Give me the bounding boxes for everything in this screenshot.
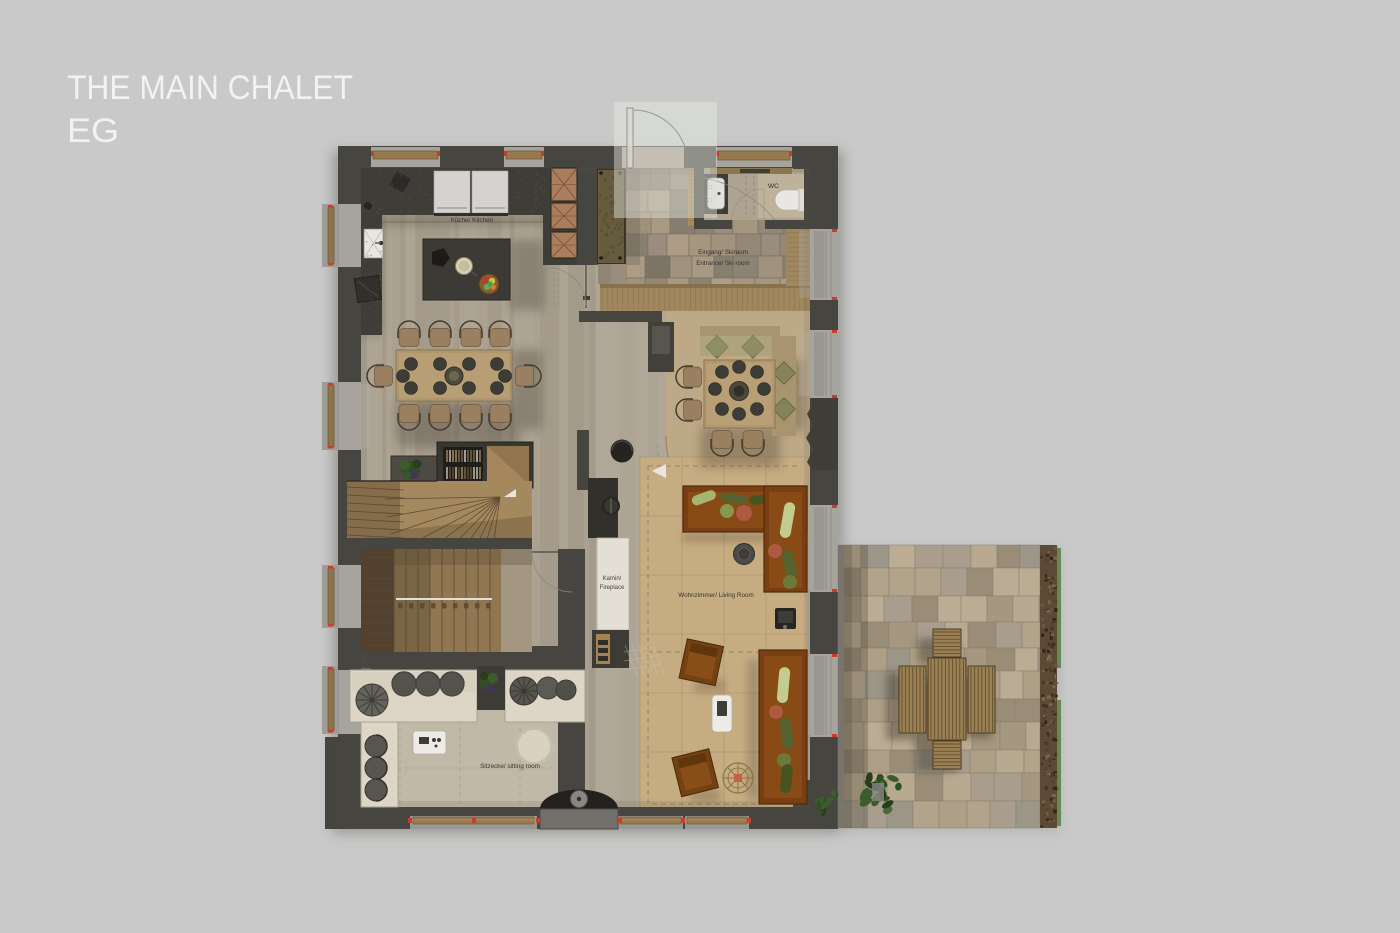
- svg-text:Entrance/ Ski room: Entrance/ Ski room: [696, 260, 750, 267]
- svg-text:THE MAIN CHALET: THE MAIN CHALET: [67, 69, 353, 107]
- svg-text:Eingang/ Skiraum: Eingang/ Skiraum: [698, 249, 748, 256]
- svg-text:Küche/ Kitchen: Küche/ Kitchen: [451, 217, 494, 224]
- svg-text:EG: EG: [67, 112, 119, 150]
